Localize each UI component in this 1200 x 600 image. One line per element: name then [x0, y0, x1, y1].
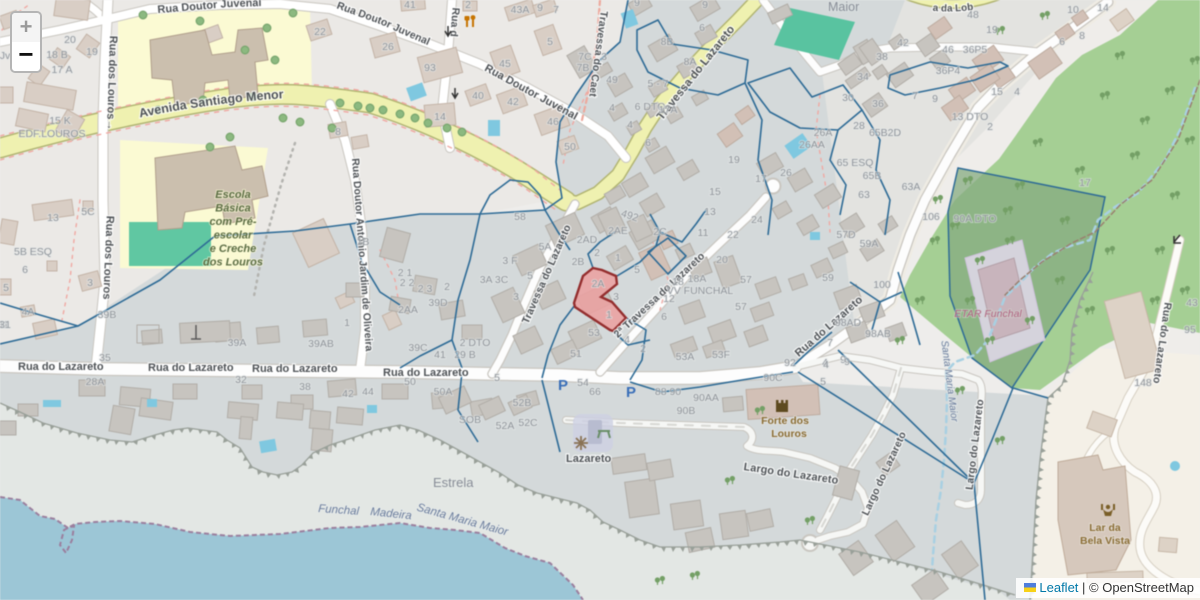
svg-text:6: 6	[22, 264, 28, 276]
svg-text:39AB: 39AB	[308, 338, 334, 350]
svg-text:45: 45	[499, 58, 511, 70]
svg-text:P: P	[558, 377, 568, 394]
svg-text:7: 7	[827, 337, 833, 349]
svg-text:6: 6	[661, 311, 667, 323]
svg-text:9: 9	[702, 0, 708, 11]
svg-text:EDF.LOUROS: EDF.LOUROS	[18, 128, 85, 140]
svg-text:2: 2	[594, 247, 600, 259]
svg-text:65 ESQ: 65 ESQ	[837, 157, 874, 169]
svg-text:2AD: 2AD	[577, 234, 598, 246]
svg-text:54: 54	[577, 377, 589, 389]
svg-text:42: 42	[507, 96, 519, 108]
svg-text:57: 57	[735, 301, 747, 313]
svg-text:5: 5	[3, 282, 9, 294]
svg-text:42: 42	[897, 37, 909, 49]
svg-text:31: 31	[0, 319, 11, 331]
svg-text:Forte dos: Forte dos	[761, 415, 809, 427]
svg-text:39A: 39A	[228, 337, 247, 349]
svg-text:10: 10	[1067, 4, 1079, 16]
svg-text:57: 57	[740, 274, 752, 286]
svg-text:Rua do Lazareto: Rua do Lazareto	[252, 363, 338, 375]
svg-text:46: 46	[942, 44, 954, 56]
svg-text:4: 4	[609, 102, 615, 114]
svg-text:Escola: Escola	[215, 189, 250, 201]
svg-text:e Creche: e Creche	[210, 243, 256, 255]
svg-text:53A: 53A	[676, 351, 695, 363]
svg-text:Rua do Lazareto: Rua do Lazareto	[383, 367, 469, 379]
svg-text:2: 2	[987, 121, 993, 133]
svg-text:46: 46	[547, 116, 559, 128]
svg-text:28: 28	[853, 120, 865, 132]
svg-text:90C: 90C	[763, 372, 783, 384]
svg-text:Louros: Louros	[771, 428, 807, 440]
svg-text:90B: 90B	[677, 405, 696, 417]
svg-text:98AB: 98AB	[865, 328, 891, 340]
svg-text:63: 63	[858, 189, 870, 201]
svg-text:51: 51	[570, 348, 582, 360]
svg-text:5B ESQ: 5B ESQ	[14, 246, 52, 258]
svg-text:VV FUNCHAL: VV FUNCHAL	[667, 285, 734, 297]
svg-text:com Pré-: com Pré-	[209, 216, 256, 228]
svg-text:59A: 59A	[860, 238, 879, 250]
svg-text:53: 53	[588, 327, 600, 339]
svg-text:98AD: 98AD	[835, 317, 862, 329]
svg-text:41: 41	[434, 349, 446, 361]
svg-text:4: 4	[627, 119, 633, 131]
svg-text:18 B: 18 B	[46, 49, 68, 61]
svg-text:42: 42	[342, 388, 354, 400]
svg-text:Bela Vista: Bela Vista	[1080, 535, 1130, 547]
svg-text:dos Louros: dos Louros	[203, 257, 263, 269]
svg-text:11: 11	[698, 227, 709, 239]
svg-text:50: 50	[404, 376, 416, 388]
svg-text:19: 19	[728, 154, 740, 166]
svg-text:2: 2	[465, 0, 471, 11]
svg-text:9: 9	[634, 0, 640, 9]
svg-text:26: 26	[382, 41, 394, 53]
svg-text:65B: 65B	[863, 170, 882, 182]
svg-text:32: 32	[235, 374, 247, 386]
svg-text:14: 14	[434, 111, 446, 123]
svg-text:106: 106	[922, 211, 940, 223]
svg-text:3: 3	[613, 291, 619, 303]
svg-text:63A: 63A	[902, 181, 921, 193]
svg-text:90AA: 90AA	[693, 392, 719, 404]
svg-text:39D: 39D	[428, 297, 448, 309]
svg-text:1: 1	[615, 252, 621, 264]
svg-text:8B: 8B	[661, 36, 674, 48]
svg-text:53F: 53F	[712, 349, 730, 361]
svg-text:40: 40	[472, 90, 484, 102]
svg-text:22: 22	[314, 26, 326, 38]
svg-text:38: 38	[299, 381, 311, 393]
svg-text:15: 15	[709, 186, 721, 198]
svg-text:4A: 4A	[22, 306, 35, 318]
svg-text:50: 50	[564, 141, 576, 153]
svg-text:39C: 39C	[408, 342, 428, 354]
svg-text:26AA: 26AA	[799, 139, 825, 151]
svg-text:5: 5	[547, 36, 553, 48]
svg-text:P: P	[626, 384, 636, 401]
svg-text:7B: 7B	[577, 62, 590, 74]
svg-text:88 90: 88 90	[655, 386, 681, 398]
svg-text:1B: 1B	[357, 236, 370, 248]
svg-text:5: 5	[820, 376, 826, 388]
svg-text:6: 6	[645, 137, 651, 149]
svg-text:9: 9	[844, 356, 850, 368]
svg-text:20: 20	[64, 34, 76, 46]
svg-text:28A: 28A	[86, 376, 105, 388]
svg-text:5 - 7: 5 - 7	[647, 78, 668, 90]
svg-text:22: 22	[727, 229, 739, 241]
svg-text:39B: 39B	[98, 309, 117, 321]
svg-text:6: 6	[1059, 36, 1065, 48]
svg-text:49: 49	[606, 74, 618, 86]
svg-text:19: 19	[86, 46, 98, 58]
svg-text:93: 93	[424, 62, 436, 74]
svg-text:5: 5	[527, 270, 533, 282]
svg-text:9: 9	[537, 2, 543, 14]
svg-text:Maior: Maior	[828, 0, 859, 14]
svg-text:5: 5	[634, 264, 640, 276]
svg-text:Estrela: Estrela	[433, 475, 474, 490]
svg-text:2AE: 2AE	[608, 225, 628, 237]
svg-text:17A: 17A	[659, 104, 678, 116]
svg-text:Lazareto: Lazareto	[566, 453, 612, 465]
svg-text:48: 48	[967, 9, 979, 21]
svg-text:17: 17	[755, 173, 767, 185]
svg-text:2C: 2C	[653, 226, 667, 238]
svg-text:24: 24	[751, 214, 763, 226]
svg-text:36P4: 36P4	[936, 65, 961, 77]
svg-text:4: 4	[624, 334, 630, 346]
svg-text:14: 14	[1097, 2, 1109, 14]
svg-text:66: 66	[589, 386, 601, 398]
svg-text:26A: 26A	[814, 127, 833, 139]
svg-text:13 DTO: 13 DTO	[952, 111, 989, 123]
svg-text:15 K: 15 K	[49, 115, 71, 127]
svg-text:50A: 50A	[434, 386, 453, 398]
svg-text:43: 43	[1186, 297, 1198, 309]
svg-text:92: 92	[784, 357, 796, 369]
svg-text:20: 20	[716, 254, 728, 266]
svg-text:2 3: 2 3	[418, 283, 433, 295]
svg-text:5: 5	[494, 372, 500, 384]
svg-text:5A: 5A	[539, 241, 552, 253]
svg-text:Rua do Lazareto: Rua do Lazareto	[148, 362, 234, 374]
svg-text:2 DTO: 2 DTO	[460, 337, 491, 349]
svg-text:3: 3	[601, 51, 607, 63]
svg-text:escolar: escolar	[214, 230, 253, 242]
svg-text:2A: 2A	[592, 278, 605, 290]
svg-text:4: 4	[1014, 86, 1020, 98]
svg-text:13: 13	[704, 206, 716, 218]
svg-text:13: 13	[47, 212, 59, 224]
svg-text:52C: 52C	[518, 417, 538, 429]
svg-text:Básica: Básica	[215, 203, 250, 215]
svg-text:7: 7	[912, 90, 918, 102]
svg-text:17: 17	[1079, 177, 1091, 189]
svg-text:100: 100	[873, 279, 891, 291]
svg-text:3 F: 3 F	[502, 255, 517, 267]
svg-text:Lar da: Lar da	[1089, 522, 1121, 534]
svg-text:18A: 18A	[688, 273, 707, 285]
svg-text:17 A: 17 A	[51, 64, 72, 76]
svg-text:52A: 52A	[496, 420, 515, 432]
svg-text:2 2: 2 2	[400, 277, 415, 289]
svg-text:30: 30	[842, 92, 854, 104]
svg-text:7: 7	[553, 4, 559, 16]
svg-text:8A: 8A	[684, 56, 697, 68]
svg-text:4: 4	[823, 359, 829, 371]
svg-text:95: 95	[1184, 324, 1196, 336]
svg-text:35: 35	[99, 352, 111, 364]
svg-text:29 B: 29 B	[454, 349, 476, 361]
svg-text:2: 2	[444, 281, 450, 293]
svg-text:1: 1	[344, 317, 350, 329]
svg-text:65B2D: 65B2D	[869, 127, 902, 139]
svg-text:2: 2	[640, 343, 646, 355]
svg-text:2B: 2B	[572, 256, 585, 268]
svg-text:58: 58	[514, 211, 526, 223]
svg-text:57D: 57D	[836, 229, 856, 241]
svg-text:36: 36	[872, 98, 884, 110]
svg-text:15: 15	[991, 86, 1003, 98]
svg-text:34: 34	[857, 71, 869, 83]
svg-text:36P5: 36P5	[963, 44, 988, 56]
svg-text:8: 8	[1079, 30, 1085, 42]
svg-text:2AA: 2AA	[398, 304, 418, 316]
svg-text:26: 26	[780, 167, 792, 179]
svg-text:41: 41	[404, 0, 416, 11]
svg-text:90A DTO: 90A DTO	[954, 213, 997, 225]
svg-text:3A 3C: 3A 3C	[480, 274, 509, 286]
svg-text:3: 3	[513, 291, 519, 303]
svg-text:Rua do Lazareto: Rua do Lazareto	[18, 361, 104, 373]
svg-text:5C: 5C	[81, 206, 95, 218]
svg-text:44: 44	[362, 386, 374, 398]
svg-text:52B: 52B	[513, 397, 532, 409]
svg-text:8: 8	[335, 126, 341, 138]
svg-text:3: 3	[87, 277, 93, 289]
svg-text:43A: 43A	[511, 4, 530, 16]
svg-text:148: 148	[1134, 377, 1152, 389]
svg-text:59: 59	[822, 272, 834, 284]
svg-text:9: 9	[932, 93, 938, 105]
svg-text:1: 1	[606, 309, 612, 321]
svg-text:SOB: SOB	[459, 414, 481, 426]
svg-text:6: 6	[699, 22, 705, 34]
svg-text:ETAR Funchal: ETAR Funchal	[954, 308, 1022, 320]
svg-text:38: 38	[876, 51, 888, 63]
svg-text:19: 19	[986, 24, 998, 36]
